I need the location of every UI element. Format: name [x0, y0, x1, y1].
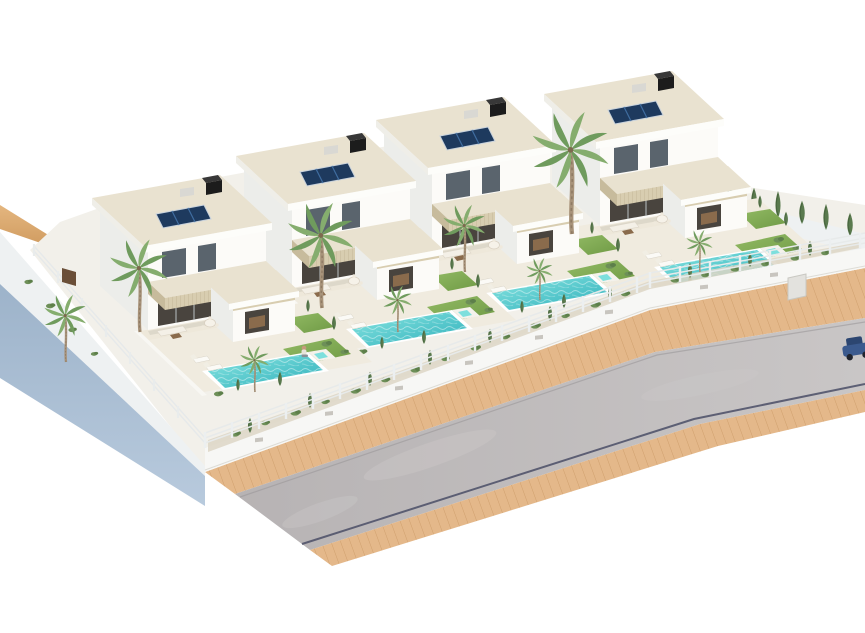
wall-gate-recess: [788, 274, 806, 300]
render-scene: 3D architectural rendering of a resident…: [0, 0, 865, 633]
architectural-render-image: 3D architectural rendering of a resident…: [0, 0, 865, 633]
